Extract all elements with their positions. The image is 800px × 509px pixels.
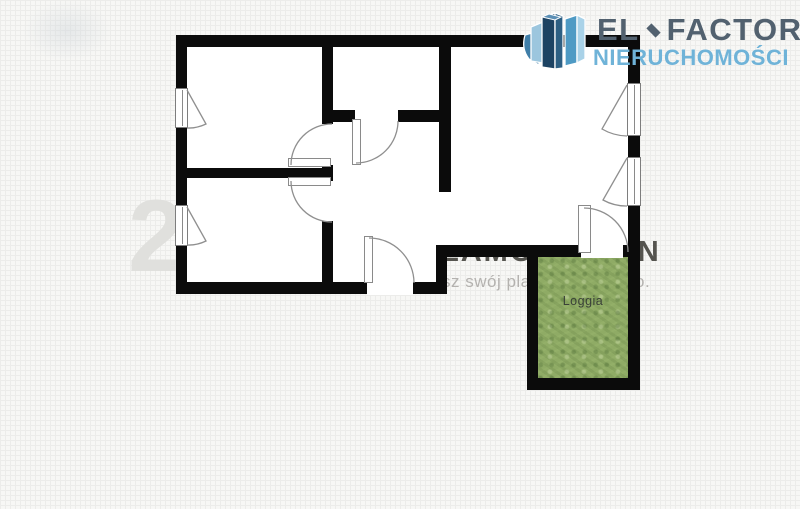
brand-name-factor: FACTOR (667, 12, 800, 48)
brand-subtitle: NIERUCHOMOŚCI (593, 45, 789, 71)
wall-exterior-left (176, 35, 187, 294)
buildings-3d-icon (519, 5, 597, 79)
watermark-text-fragment-left: sz swój pla (442, 272, 531, 292)
wall-loggia-left (527, 250, 538, 390)
floorplan-page: 2 ZAMÓW PLAN sz swój pla o. (0, 0, 800, 509)
window-left-bottom (175, 205, 188, 246)
brand-name: EL FACTOR (597, 12, 800, 48)
brand-name-el: EL (597, 12, 640, 48)
wall-loggia-bottom (527, 378, 640, 390)
door-leaf-room-top-left (288, 158, 331, 167)
ghost-logo-smudge (22, 0, 112, 62)
door-leaf-entrance (364, 236, 373, 283)
door-leaf-loggia (578, 205, 591, 253)
loggia-floor (538, 257, 628, 378)
door-leaf-room-bottom-left (288, 177, 331, 186)
door-leaf-bathroom (352, 119, 361, 165)
window-left-top (175, 88, 188, 128)
door-opening-bathroom (355, 108, 398, 124)
diamond-separator-icon (646, 23, 660, 37)
door-opening-room-bottom-left (322, 181, 333, 221)
window-right-top (627, 83, 641, 136)
loggia-label: Loggia (538, 294, 628, 308)
door-opening-entrance (367, 281, 413, 295)
wall-hall-living-divider (439, 41, 451, 192)
window-right-bottom (627, 157, 641, 206)
